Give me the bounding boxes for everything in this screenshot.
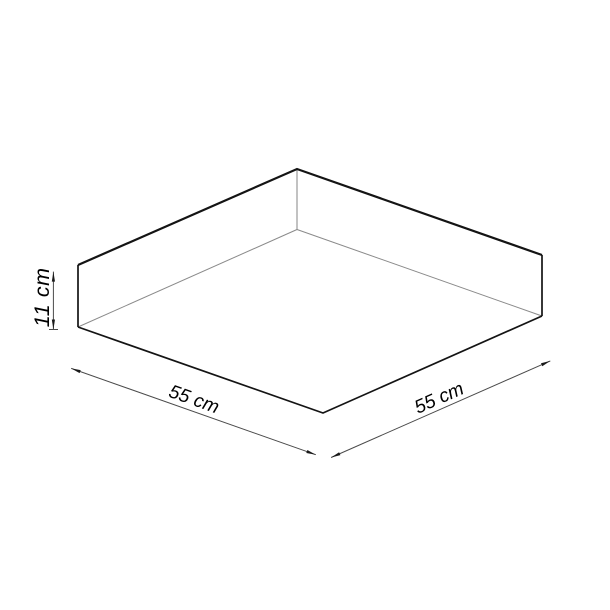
svg-text:11 cm: 11 cm: [30, 267, 54, 327]
svg-text:55 cm: 55 cm: [166, 381, 222, 418]
svg-text:55 cm: 55 cm: [411, 378, 467, 418]
